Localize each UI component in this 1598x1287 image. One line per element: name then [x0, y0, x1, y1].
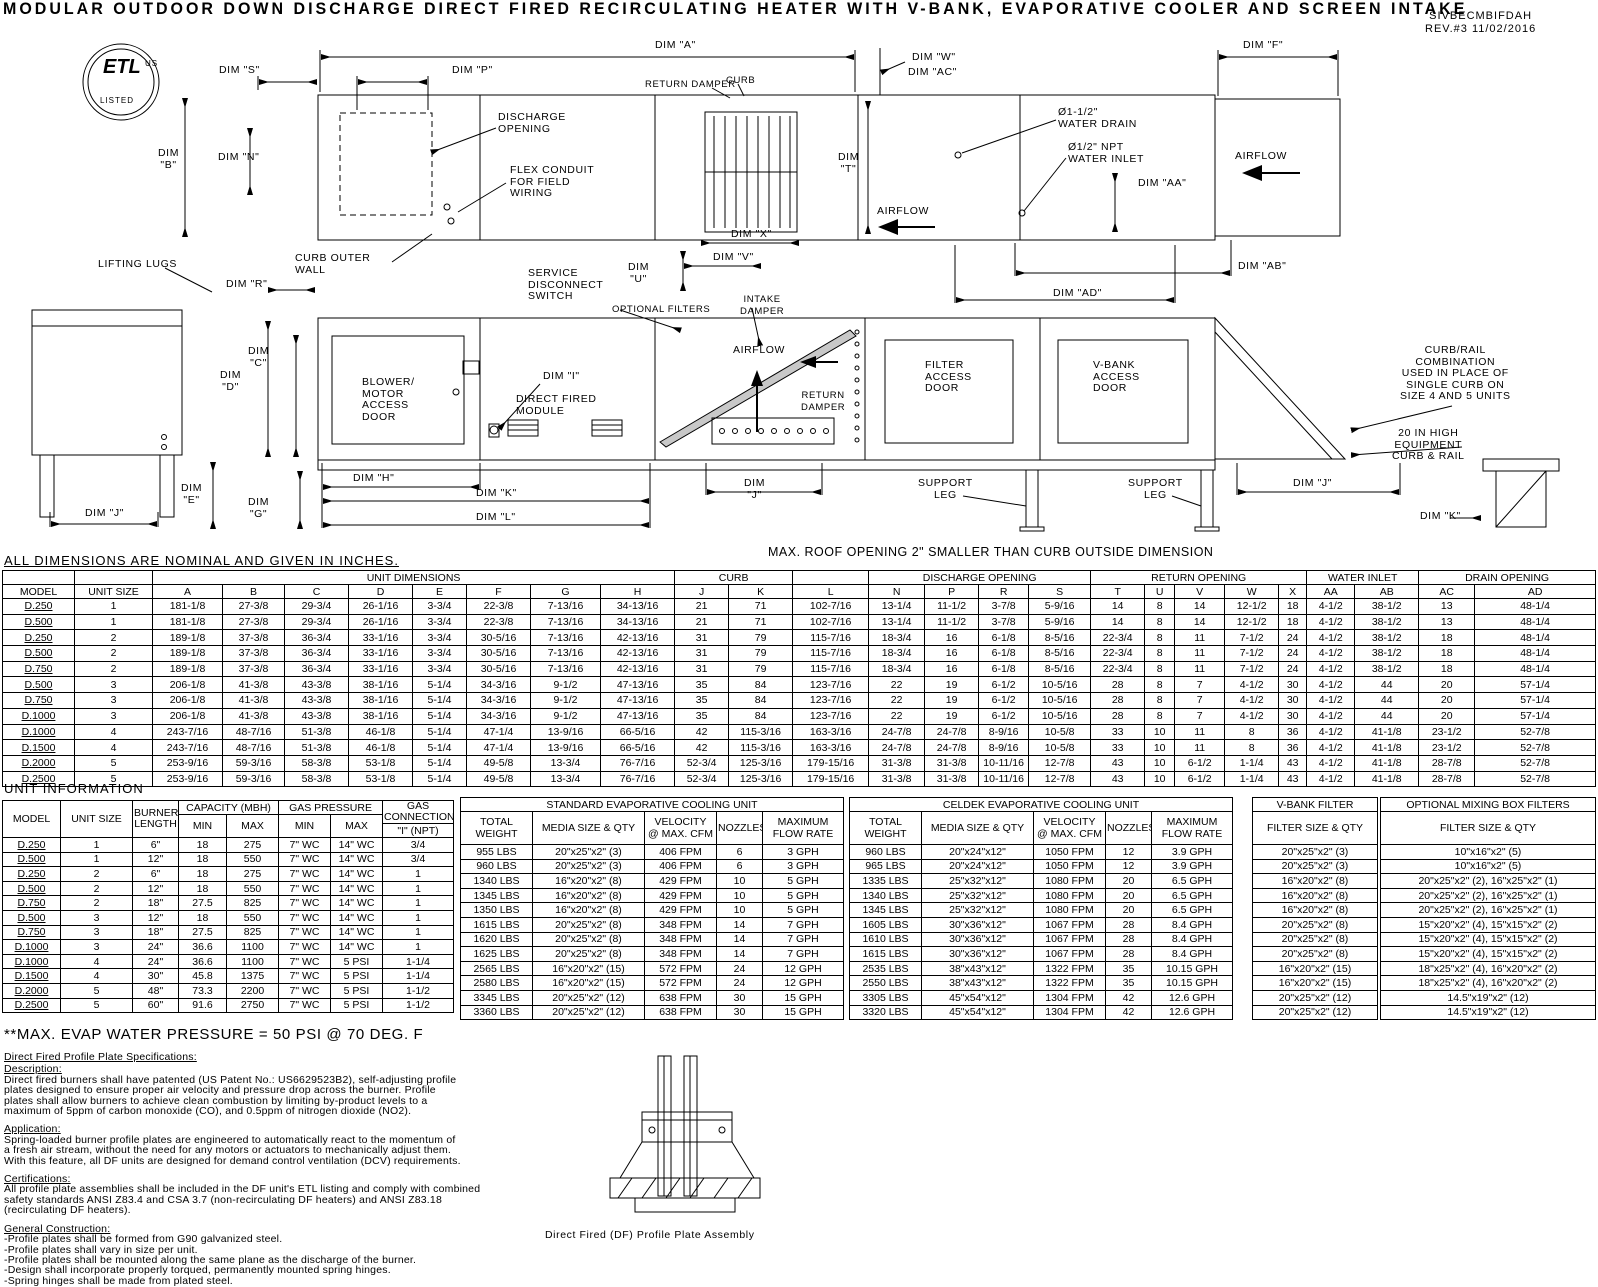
table-row: D.1000424"36.611007" WC5 PSI1-1/4 — [3, 954, 454, 969]
spec-heading: Direct Fired Profile Plate Specification… — [4, 1052, 549, 1062]
table-row: D.2000548"73.322007" WC5 PSI1-1/2 — [3, 983, 454, 998]
table-row: 14.5"x19"x2" (12) — [1381, 1005, 1596, 1020]
spec-body: Direct fired burners shall have patented… — [4, 1075, 549, 1117]
pressure-min-header: MIN — [279, 815, 331, 838]
model-header: MODEL — [3, 801, 61, 838]
table-row: 20"x25"x2" (12) — [1253, 990, 1378, 1005]
table-row: 20"x25"x2" (3) — [1253, 845, 1378, 860]
curb-label: CURB — [726, 75, 755, 87]
dim-ad-label: DIM "AD" — [1053, 288, 1102, 300]
table-row: 10"x16"x2" (5) — [1381, 845, 1596, 860]
support-leg-1-label: SUPPORT LEG — [918, 478, 973, 501]
table-row: D.7502189-1/837-3/836-3/433-1/163-3/430-… — [3, 661, 1596, 677]
filter-access-door-label: FILTER ACCESS DOOR — [925, 360, 972, 395]
table-row: 3305 LBS45"x54"x12"1304 FPM4212.6 GPH — [850, 990, 1233, 1005]
table-row: D.10003206-1/841-3/843-3/838-1/165-1/434… — [3, 708, 1596, 724]
npt-header: "I" (NPT) — [383, 824, 454, 838]
return-damper-2-label: RETURN DAMPER — [801, 390, 845, 413]
unit-dimensions-header: UNIT DIMENSIONS — [153, 571, 675, 585]
dim-s-label: DIM "S" — [219, 65, 260, 77]
gas-connection-header: GAS CONNECTION — [383, 801, 454, 824]
unit-information-table: MODEL UNIT SIZE BURNER LENGTH CAPACITY (… — [2, 800, 454, 1013]
dimension-table: UNIT DIMENSIONS CURB DISCHARGE OPENING R… — [2, 570, 1596, 787]
dim-table-group-row: UNIT DIMENSIONS CURB DISCHARGE OPENING R… — [3, 571, 1596, 585]
spec-body: Spring-loaded burner profile plates are … — [4, 1135, 549, 1166]
table-row: D.1500430"45.813757" WC5 PSI1-1/4 — [3, 969, 454, 984]
table-row: D.750318"27.58257" WC14" WC1 — [3, 925, 454, 940]
table-row: 1340 LBS25"x32"x12"1080 FPM206.5 GPH — [850, 888, 1233, 903]
vbank-access-door-label: V-BANK ACCESS DOOR — [1093, 360, 1140, 395]
airflow-top-right-label: AIRFLOW — [1235, 151, 1287, 163]
table-row: 18"x25"x2" (4), 16"x20"x2" (2) — [1381, 961, 1596, 976]
assembly-caption: Direct Fired (DF) Profile Plate Assembly — [545, 1229, 755, 1241]
spec-text-block: Direct Fired Profile Plate Specification… — [4, 1052, 549, 1286]
table-row: 1335 LBS25"x32"x12"1080 FPM206.5 GPH — [850, 874, 1233, 889]
lifting-lugs-label: LIFTING LUGS — [98, 259, 177, 271]
table-row: 955 LBS20"x25"x2" (3)406 FPM63 GPH — [461, 845, 844, 860]
table-row: 20"x25"x2" (2), 16"x25"x2" (1) — [1381, 888, 1596, 903]
dim-f-label: DIM "F" — [1243, 40, 1283, 52]
table-row: D.750218"27.58257" WC14" WC1 — [3, 896, 454, 911]
table-row: 1615 LBS20"x25"x2" (8)348 FPM147 GPH — [461, 917, 844, 932]
pressure-max-header: MAX — [331, 815, 383, 838]
dim-x-label: DIM "X" — [731, 229, 772, 241]
dim-h-label: DIM "H" — [353, 473, 394, 485]
dim-aa-label: DIM "AA" — [1138, 178, 1186, 190]
mixing-box-title: OPTIONAL MIXING BOX FILTERS — [1381, 798, 1596, 812]
vbank-filter-table: V-BANK FILTER FILTER SIZE & QTY 20"x25"x… — [1252, 797, 1378, 1020]
table-row: D.7503206-1/841-3/843-3/838-1/165-1/434-… — [3, 693, 1596, 709]
curb-outer-wall-label: CURB OUTER WALL — [295, 253, 370, 276]
dim-table-column-row: MODEL UNIT SIZE A B C D E F G H J K L N … — [3, 585, 1596, 599]
water-inlet-header: WATER INLET — [1307, 571, 1419, 585]
capacity-max-header: MAX — [227, 815, 279, 838]
table-row: D.15004243-7/1648-7/1651-3/846-1/85-1/44… — [3, 740, 1596, 756]
table-row: D.20005253-9/1659-3/1658-3/853-1/85-1/44… — [3, 755, 1596, 771]
table-row: 2565 LBS16"x20"x2" (15)572 FPM2412 GPH — [461, 961, 844, 976]
dim-i-label: DIM "I" — [543, 371, 580, 383]
mixing-box-filters-table: OPTIONAL MIXING BOX FILTERS FILTER SIZE … — [1380, 797, 1596, 1020]
table-row: 1345 LBS16"x20"x2" (8)429 FPM105 GPH — [461, 888, 844, 903]
dim-l-label: DIM "L" — [476, 512, 516, 524]
vbank-filter-title: V-BANK FILTER — [1253, 798, 1378, 812]
table-row: 15"x20"x2" (4), 15"x15"x2" (2) — [1381, 917, 1596, 932]
dim-e-label: DIM "E" — [181, 483, 202, 506]
table-row: D.2500560"91.627507" WC5 PSI1-1/2 — [3, 998, 454, 1013]
dim-j-mid-label: DIM "J" — [744, 478, 765, 501]
table-row: D.5002189-1/837-3/836-3/433-1/163-3/430-… — [3, 646, 1596, 662]
table-row: 16"x20"x2" (8) — [1253, 874, 1378, 889]
table-row: D.25005253-9/1659-3/1658-3/853-1/85-1/44… — [3, 771, 1596, 787]
table-row: D.5003206-1/841-3/843-3/838-1/165-1/434-… — [3, 677, 1596, 693]
intake-damper-label: INTAKE DAMPER — [740, 294, 784, 317]
table-row: 20"x25"x2" (12) — [1253, 1005, 1378, 1020]
curb-rail-combo-label: CURB/RAIL COMBINATION USED IN PLACE OF S… — [1400, 345, 1511, 403]
dim-b-label: DIM "B" — [158, 148, 179, 171]
discharge-opening-header: DISCHARGE OPENING — [869, 571, 1091, 585]
dim-ac-label: DIM "AC" — [908, 67, 957, 79]
table-row: 16"x20"x2" (15) — [1253, 976, 1378, 991]
etl-listed-text: LISTED — [100, 95, 134, 107]
spec-body: All profile plate assemblies shall be in… — [4, 1184, 549, 1215]
standard-evap-table: STANDARD EVAPORATIVE COOLING UNIT TOTAL … — [460, 797, 844, 1020]
drawing-label-layer: ETL LISTED US DIM "S" DIM "P" DIM "A" DI… — [0, 0, 1598, 545]
return-damper-label: RETURN DAMPER — [645, 79, 736, 91]
table-row: 15"x20"x2" (4), 15"x15"x2" (2) — [1381, 932, 1596, 947]
table-row: 20"x25"x2" (2), 16"x25"x2" (1) — [1381, 874, 1596, 889]
dim-d-label: DIM "D" — [220, 370, 241, 393]
spec-body: -Profile plates shall be formed from G90… — [4, 1234, 549, 1286]
curb-20-label: 20 IN HIGH EQUIPMENT CURB & RAIL — [1392, 428, 1465, 463]
table-row: 20"x25"x2" (3) — [1253, 859, 1378, 874]
table-row: 20"x25"x2" (2), 16"x25"x2" (1) — [1381, 903, 1596, 918]
curb-header: CURB — [675, 571, 793, 585]
table-row: 2550 LBS38"x43"x12"1322 FPM3510.15 GPH — [850, 976, 1233, 991]
dim-k-bottom-label: DIM "K" — [476, 488, 517, 500]
dim-j-left-label: DIM "J" — [85, 508, 124, 520]
table-row: 20"x25"x2" (8) — [1253, 947, 1378, 962]
table-row: 1625 LBS20"x25"x2" (8)348 FPM147 GPH — [461, 947, 844, 962]
table-row: D.2501181-1/827-3/829-3/426-1/163-3/422-… — [3, 599, 1596, 615]
drain-opening-header: DRAIN OPENING — [1419, 571, 1596, 585]
table-row: 18"x25"x2" (4), 16"x20"x2" (2) — [1381, 976, 1596, 991]
table-row: 3360 LBS20"x25"x2" (12)638 FPM3015 GPH — [461, 1005, 844, 1020]
table-row: 2535 LBS38"x43"x12"1322 FPM3510.15 GPH — [850, 961, 1233, 976]
service-disconnect-label: SERVICE DISCONNECT SWITCH — [528, 268, 603, 303]
table-row: D.25016"182757" WC14" WC3/4 — [3, 838, 454, 853]
dimensions-note: ALL DIMENSIONS ARE NOMINAL AND GIVEN IN … — [4, 553, 399, 568]
return-opening-header: RETURN OPENING — [1091, 571, 1307, 585]
table-row: 14.5"x19"x2" (12) — [1381, 990, 1596, 1005]
table-row: D.500112"185507" WC14" WC3/4 — [3, 852, 454, 867]
celdek-evap-title: CELDEK EVAPORATIVE COOLING UNIT — [850, 798, 1233, 812]
table-row: 20"x25"x2" (8) — [1253, 917, 1378, 932]
etl-logo-text: ETL — [103, 62, 141, 74]
unit-information-title: UNIT INFORMATION — [4, 781, 144, 796]
unit-size-header: UNIT SIZE — [61, 801, 133, 838]
table-row: D.500312"185507" WC14" WC1 — [3, 910, 454, 925]
table-row: 1340 LBS16"x20"x2" (8)429 FPM105 GPH — [461, 874, 844, 889]
table-row: D.5001181-1/827-3/829-3/426-1/163-3/422-… — [3, 614, 1596, 630]
support-leg-2-label: SUPPORT LEG — [1128, 478, 1183, 501]
table-row: 1610 LBS30"x36"x12"1067 FPM288.4 GPH — [850, 932, 1233, 947]
gas-pressure-header: GAS PRESSURE — [279, 801, 383, 815]
table-row: 16"x20"x2" (15) — [1253, 961, 1378, 976]
dim-p-label: DIM "P" — [452, 65, 493, 77]
burner-length-header: BURNER LENGTH — [133, 801, 179, 838]
roof-opening-note: MAX. ROOF OPENING 2" SMALLER THAN CURB O… — [768, 545, 1213, 559]
table-row: D.1000324"36.611007" WC14" WC1 — [3, 940, 454, 955]
etl-us-text: US — [145, 58, 158, 70]
discharge-opening-label: DISCHARGE OPENING — [498, 112, 566, 135]
capacity-min-header: MIN — [179, 815, 227, 838]
dim-v-label: DIM "V" — [713, 252, 754, 264]
table-row: D.2502189-1/837-3/836-3/433-1/163-3/430-… — [3, 630, 1596, 646]
table-row: D.25026"182757" WC14" WC1 — [3, 867, 454, 882]
table-row: 1620 LBS20"x25"x2" (8)348 FPM147 GPH — [461, 932, 844, 947]
blower-door-label: BLOWER/ MOTOR ACCESS DOOR — [362, 377, 415, 423]
dim-ab-label: DIM "AB" — [1238, 261, 1286, 273]
optional-filters-label: OPTIONAL FILTERS — [612, 304, 710, 316]
dim-j-right-label: DIM "J" — [1293, 478, 1332, 490]
table-row: 16"x20"x2" (8) — [1253, 888, 1378, 903]
water-inlet-label: Ø1/2" NPT WATER INLET — [1068, 142, 1144, 165]
table-row: 3320 LBS45"x54"x12"1304 FPM4212.6 GPH — [850, 1005, 1233, 1020]
table-row: 3345 LBS20"x25"x2" (12)638 FPM3015 GPH — [461, 990, 844, 1005]
airflow-center-label: AIRFLOW — [733, 345, 785, 357]
evap-water-pressure-note: **MAX. EVAP WATER PRESSURE = 50 PSI @ 70… — [4, 1026, 423, 1043]
dim-k-right-label: DIM "K" — [1420, 511, 1461, 523]
table-row: 2580 LBS16"x20"x2" (15)572 FPM2412 GPH — [461, 976, 844, 991]
airflow-mid-label: AIRFLOW — [877, 206, 929, 218]
table-row: D.10004243-7/1648-7/1651-3/846-1/85-1/44… — [3, 724, 1596, 740]
table-row: 960 LBS20"x25"x2" (3)406 FPM63 GPH — [461, 859, 844, 874]
dim-c-label: DIM "C" — [248, 346, 269, 369]
dim-u-label: DIM "U" — [628, 262, 649, 285]
dim-n-label: DIM "N" — [218, 152, 259, 164]
table-row: 10"x16"x2" (5) — [1381, 859, 1596, 874]
celdek-evap-table: CELDEK EVAPORATIVE COOLING UNIT TOTAL WE… — [849, 797, 1233, 1020]
flex-conduit-label: FLEX CONDUIT FOR FIELD WIRING — [510, 165, 594, 200]
table-row: 1615 LBS30"x36"x12"1067 FPM288.4 GPH — [850, 947, 1233, 962]
dim-w-label: DIM "W" — [912, 52, 956, 64]
standard-evap-title: STANDARD EVAPORATIVE COOLING UNIT — [461, 798, 844, 812]
dim-g-label: DIM "G" — [248, 497, 269, 520]
capacity-header: CAPACITY (MBH) — [179, 801, 279, 815]
table-row: 960 LBS20"x24"x12"1050 FPM123.9 GPH — [850, 845, 1233, 860]
water-drain-label: Ø1-1/2" WATER DRAIN — [1058, 107, 1137, 130]
dim-r-label: DIM "R" — [226, 279, 267, 291]
dim-a-label: DIM "A" — [655, 40, 696, 52]
table-row: D.500212"185507" WC14" WC1 — [3, 881, 454, 896]
table-row: 20"x25"x2" (8) — [1253, 932, 1378, 947]
table-row: 1345 LBS25"x32"x12"1080 FPM206.5 GPH — [850, 903, 1233, 918]
dim-t-label: DIM "T" — [838, 152, 859, 175]
table-row: 1605 LBS30"x36"x12"1067 FPM288.4 GPH — [850, 917, 1233, 932]
direct-fired-module-label: DIRECT FIRED MODULE — [516, 394, 597, 417]
table-row: 1350 LBS16"x20"x2" (8)429 FPM105 GPH — [461, 903, 844, 918]
table-row: 16"x20"x2" (8) — [1253, 903, 1378, 918]
profile-plate-assembly-drawing — [580, 1050, 820, 1228]
table-row: 15"x20"x2" (4), 15"x15"x2" (2) — [1381, 947, 1596, 962]
table-row: 965 LBS20"x24"x12"1050 FPM123.9 GPH — [850, 859, 1233, 874]
cad-spec-sheet: { "header": { "title": "MODULAR OUTDOOR … — [0, 0, 1598, 1280]
